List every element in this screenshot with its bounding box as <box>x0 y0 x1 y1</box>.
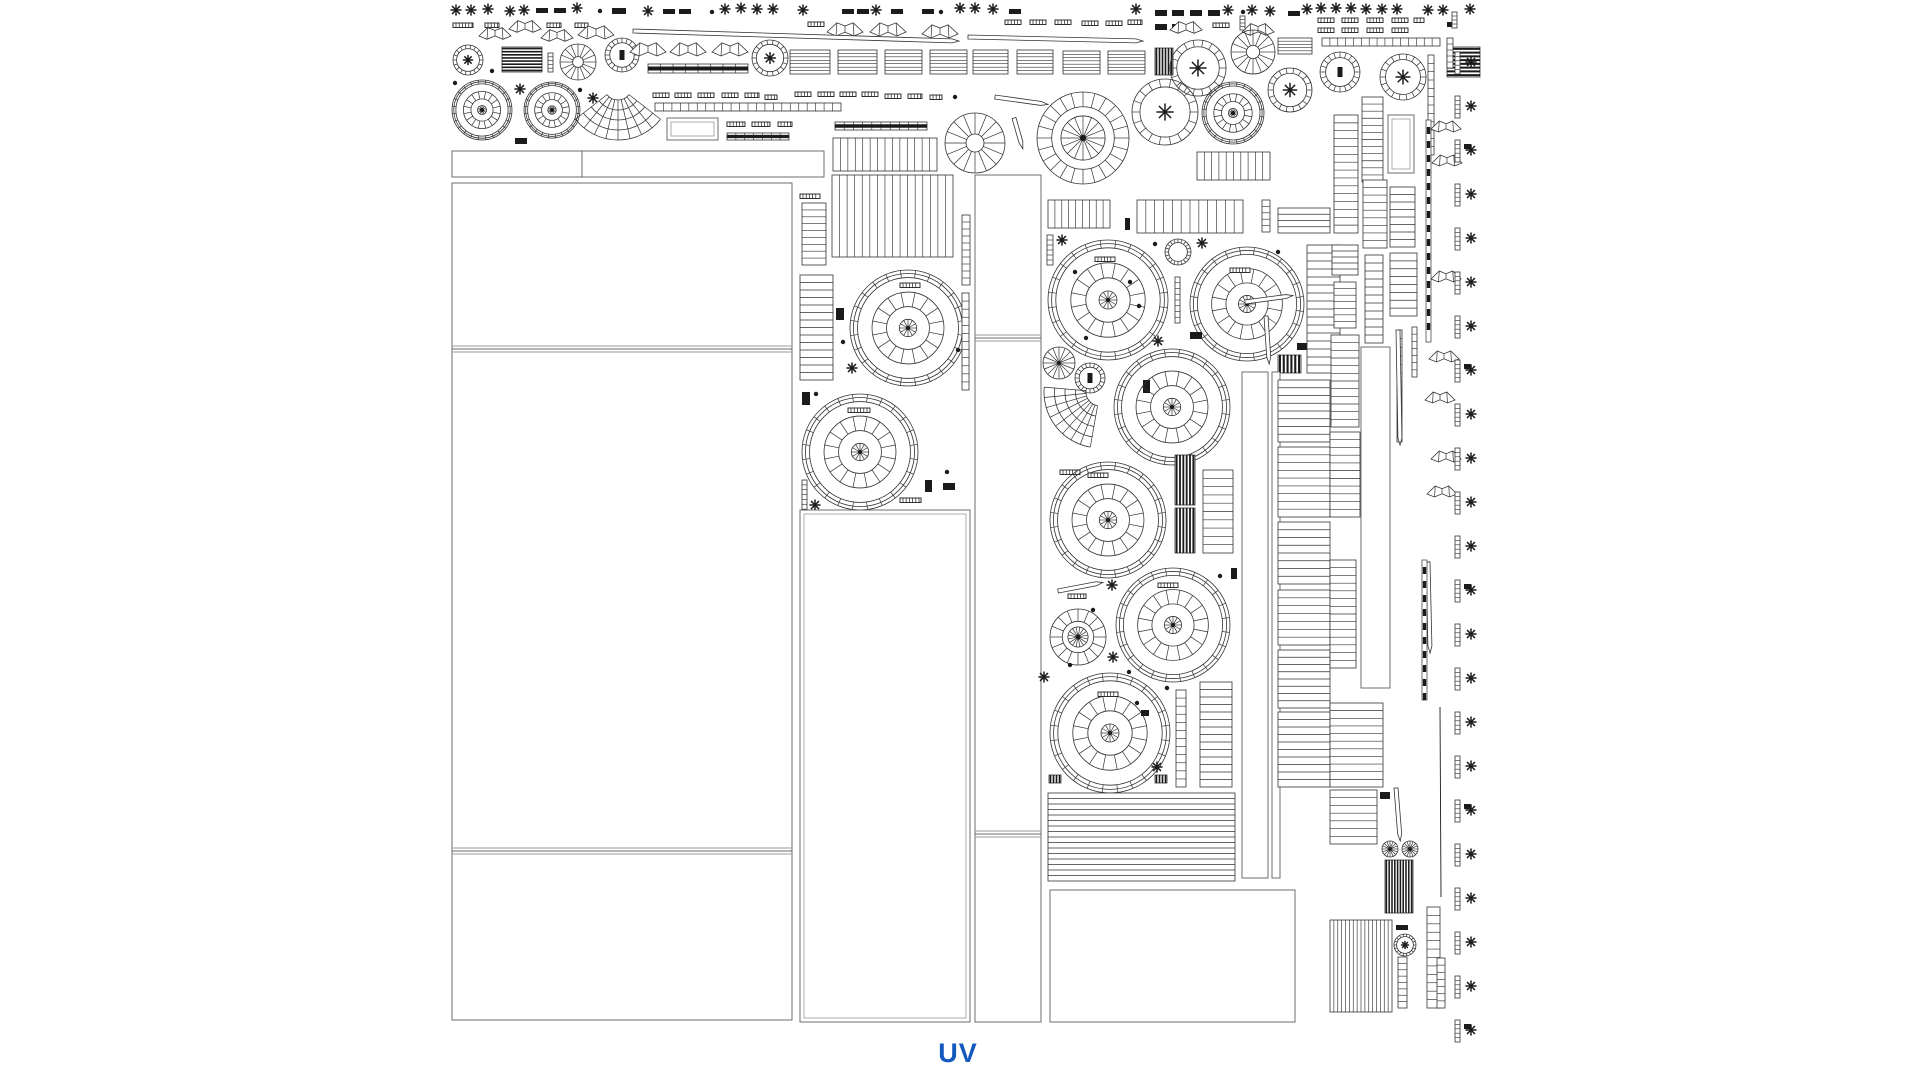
uv-island-br <box>800 510 970 1022</box>
uv-island-su <box>1037 92 1129 184</box>
uv-island-hd <box>502 47 542 72</box>
uv-island-sc <box>765 95 777 100</box>
uv-island-sc <box>1414 18 1424 23</box>
uv-island-hs <box>1108 51 1145 74</box>
uv-island-sc <box>1128 20 1142 25</box>
uv-island-hs <box>1332 245 1358 275</box>
uv-island-dt <box>490 69 494 73</box>
uv-island-sc <box>900 498 921 503</box>
uv-island-sg <box>752 40 788 76</box>
uv-island-sc <box>1213 23 1229 28</box>
uv-island-sc <box>930 95 942 100</box>
uv-island-dt <box>598 9 602 13</box>
uv-island-as <box>515 84 525 94</box>
uv-island-sc <box>1367 28 1383 33</box>
uv-island-hs <box>1330 703 1383 787</box>
uv-island-wg <box>509 21 541 33</box>
uv-island-ch <box>891 9 903 14</box>
uv-island-dt <box>953 95 957 99</box>
uv-island-sc <box>800 194 820 199</box>
uv-island-dt <box>1127 670 1131 674</box>
uv-island-hs <box>790 50 830 74</box>
uv-island-as <box>1465 4 1475 14</box>
uv-island-sc <box>840 92 856 97</box>
uv-island-hs <box>1278 208 1330 233</box>
uv-island-br <box>1388 115 1414 173</box>
uv-island-sc <box>1055 20 1071 25</box>
uv-island-vd <box>1278 355 1301 373</box>
uv-island-sc <box>1342 18 1358 23</box>
uv-island-vd <box>1175 455 1195 505</box>
uv-island-sc <box>485 23 499 28</box>
uv-island-sc <box>1098 692 1118 697</box>
uv-island-sc <box>862 92 878 97</box>
uv-island-fn <box>575 95 660 140</box>
uv-island-hs <box>1390 253 1417 316</box>
uv-island-dt <box>1165 686 1169 690</box>
uv-island-as <box>572 3 582 13</box>
uv-island-hs <box>885 50 922 74</box>
uv-island-dt <box>453 81 457 85</box>
uv-island-rc <box>452 151 582 177</box>
uv-island-hs <box>1362 97 1383 182</box>
uv-island-as <box>1361 4 1371 14</box>
uv-island-as <box>1039 672 1049 682</box>
uv-island-as <box>588 93 598 103</box>
uv-island-rd <box>1394 788 1402 841</box>
uv-island-hs <box>802 203 826 265</box>
uv-island-sg <box>1132 79 1198 145</box>
uv-island-sb <box>560 44 596 80</box>
uv-island-sc <box>1367 18 1383 23</box>
uv-island-ch <box>612 8 626 14</box>
uv-island-rg <box>1165 239 1191 265</box>
uv-island-as <box>1346 3 1356 13</box>
uv-island-hs <box>1331 335 1359 427</box>
uv-island-as <box>988 4 998 14</box>
uv-island-as <box>1438 5 1448 15</box>
uv-island-sc <box>575 23 588 28</box>
uv-island-hs <box>1330 560 1356 668</box>
uv-island-ch <box>1125 218 1130 230</box>
uv-island-dt <box>1153 242 1157 246</box>
uv-island-ch <box>1172 10 1184 16</box>
uv-island-rg <box>1320 52 1360 92</box>
uv-island-as <box>1197 238 1207 248</box>
uv-island-hs <box>1240 16 1245 30</box>
uv-island-rd <box>1012 117 1023 148</box>
uv-island-vd <box>1049 775 1061 783</box>
uv-island-as <box>1423 5 1433 15</box>
uv-island-sg <box>1170 40 1226 96</box>
uv-island-hs <box>1365 255 1383 343</box>
uv-island-sg <box>1394 934 1416 956</box>
uv-island-ch <box>515 138 527 144</box>
uv-island-wg <box>1429 351 1459 362</box>
uv-island-as <box>1057 235 1067 245</box>
uv-island-as <box>1392 4 1402 14</box>
uv-island-hs <box>1278 380 1330 442</box>
uv-island-ch <box>1155 10 1167 16</box>
uv-island-dt <box>1084 336 1088 340</box>
uv-island-hs <box>1452 12 1457 28</box>
uv-island-hs <box>1176 690 1186 787</box>
uv-island-dt <box>841 340 845 344</box>
uv-island-as <box>955 3 965 13</box>
uv-island-sc <box>1030 20 1046 25</box>
uv-island-bg <box>452 80 512 140</box>
uv-island-sc <box>1088 473 1108 478</box>
uv-island-ch <box>1380 792 1390 799</box>
uv-island-ch <box>1231 568 1237 579</box>
uv-island-wg <box>1425 392 1455 403</box>
uv-island-as <box>1107 580 1117 590</box>
uv-island-dt <box>939 10 943 14</box>
uv-island-hs <box>1175 277 1180 323</box>
uv-island-as <box>1265 6 1275 16</box>
uv-island-sb <box>1382 841 1398 857</box>
uv-island-ch <box>1155 24 1167 30</box>
uv-island-vs <box>1322 38 1440 46</box>
uv-island-vs <box>655 103 841 111</box>
uv-island-sc <box>885 94 901 99</box>
uv-island-wg <box>670 43 706 56</box>
uv-island-wg <box>1170 22 1202 34</box>
uv-island-vs <box>1048 200 1110 228</box>
uv-island-hs <box>802 480 807 514</box>
uv-island-fn <box>1044 387 1098 447</box>
uv-island-wg <box>479 28 511 40</box>
uv-island-sg <box>1268 68 1312 112</box>
uv-island-as <box>483 4 493 14</box>
uv-island-ch <box>554 8 566 13</box>
uv-island-hs <box>962 215 970 285</box>
uv-island-hs <box>1398 957 1407 1008</box>
uv-island-sg <box>453 45 483 75</box>
uv-island-ch <box>663 9 675 14</box>
uv-island-dt <box>1137 304 1141 308</box>
uv-island-hs <box>1437 958 1445 1008</box>
uv-island-cn <box>1422 560 1427 700</box>
uv-island-ch <box>679 9 691 14</box>
uv-island-as <box>1152 762 1162 772</box>
uv-island-wg <box>827 23 863 36</box>
uv-island-dr <box>452 183 792 1020</box>
uv-island-rg <box>1075 363 1105 393</box>
uv-island-as <box>519 5 529 15</box>
uv-island-ch <box>536 8 548 13</box>
uv-island-rc <box>582 151 824 177</box>
uv-island-db <box>648 64 748 73</box>
uv-island-vs <box>1330 920 1392 1012</box>
uv-island-dt <box>1135 701 1139 705</box>
uv-island-ch <box>925 480 932 492</box>
uv-island-as <box>1316 3 1326 13</box>
uv-label: UV <box>898 1038 1018 1069</box>
uv-island-hs <box>548 53 553 72</box>
uv-island-sb <box>1043 347 1075 379</box>
uv-island-dt <box>578 88 582 92</box>
uv-island-as <box>736 3 746 13</box>
uv-island-rd <box>633 29 959 43</box>
uv-island-ch <box>943 483 955 490</box>
uv-island-ch <box>1396 925 1408 930</box>
uv-preview-page: UV <box>0 0 1920 1080</box>
uv-island-as <box>505 6 515 16</box>
uv-island-as <box>1108 652 1118 662</box>
uv-island-sc <box>1318 28 1334 33</box>
uv-island-as <box>752 4 762 14</box>
uv-island-rc <box>1050 890 1295 1022</box>
uv-island-dt <box>1091 608 1095 612</box>
uv-island-sc <box>727 122 745 127</box>
uv-island-ch <box>1208 10 1220 16</box>
uv-island-as <box>643 6 653 16</box>
uv-island-as <box>1331 3 1341 13</box>
uv-island-sg <box>1380 54 1426 100</box>
uv-island-rc <box>1242 372 1268 878</box>
uv-island-sc <box>1158 583 1178 588</box>
uv-island-as <box>1302 4 1312 14</box>
uv-island-rg <box>605 38 639 72</box>
uv-island-cn <box>1426 120 1431 342</box>
uv-island-sc <box>848 408 870 413</box>
uv-island-hs <box>1334 115 1358 233</box>
uv-island-hs <box>1363 180 1387 248</box>
uv-island-wg <box>1431 121 1461 132</box>
uv-island-rd <box>1245 295 1293 304</box>
uv-island-wg <box>712 43 748 56</box>
uv-island-wg <box>870 23 906 36</box>
uv-island-rd <box>995 95 1048 105</box>
uv-island-ln <box>1440 707 1441 897</box>
uv-island-sb <box>1231 30 1275 74</box>
uv-island-as <box>720 4 730 14</box>
uv-island-wg <box>1242 24 1274 36</box>
uv-island-sc <box>1392 28 1408 33</box>
uv-island-dt <box>945 470 949 474</box>
uv-island-hs <box>1278 38 1312 54</box>
uv-layout-canvas <box>0 0 1920 1080</box>
uv-island-vs <box>1197 152 1270 180</box>
uv-island-hs <box>930 50 967 74</box>
uv-island-sc <box>698 93 714 98</box>
uv-island-ch <box>836 308 844 320</box>
uv-island-sc <box>722 93 738 98</box>
uv-island-dt <box>1241 10 1245 14</box>
uv-island-hs <box>1278 522 1330 584</box>
uv-island-rd <box>1058 582 1103 593</box>
uv-island-ch <box>1009 9 1021 14</box>
uv-island-as <box>768 4 778 14</box>
uv-island-wg <box>541 30 573 42</box>
uv-island-vs <box>833 138 937 171</box>
uv-island-bg <box>1202 82 1264 144</box>
uv-island-sc <box>653 93 669 98</box>
uv-island-sc <box>1005 20 1021 25</box>
uv-island-sc <box>778 122 792 127</box>
uv-island-ch <box>1288 11 1300 16</box>
uv-island-hs <box>962 293 969 390</box>
uv-island-hs <box>1017 50 1053 74</box>
uv-island-sc <box>675 93 691 98</box>
uv-island-as <box>451 5 461 15</box>
uv-island-hs <box>1334 282 1356 328</box>
uv-island-ch <box>1190 10 1202 16</box>
uv-island-as <box>970 3 980 13</box>
uv-island-hs <box>1203 470 1233 553</box>
uv-island-hs <box>1047 235 1053 265</box>
uv-island-sc <box>453 23 473 28</box>
uv-island-sc <box>1318 18 1334 23</box>
uv-island-hs <box>1200 682 1232 787</box>
uv-island-as <box>1377 4 1387 14</box>
uv-island-hs <box>1262 200 1270 232</box>
uv-island-vd <box>1385 860 1413 913</box>
uv-island-vd <box>1155 775 1167 783</box>
uv-island-as <box>810 500 820 510</box>
uv-island-rd <box>968 35 1143 43</box>
uv-island-sc <box>795 92 811 97</box>
uv-island-sb <box>945 113 1005 173</box>
uv-island-rc <box>1361 347 1390 688</box>
uv-island-sc <box>1392 18 1408 23</box>
uv-island-ch <box>802 392 810 405</box>
uv-island-ch <box>842 9 854 14</box>
uv-island-ch <box>1141 710 1149 716</box>
uv-island-hs <box>1330 790 1377 844</box>
uv-island-hs <box>1278 590 1330 645</box>
uv-edge-column <box>1455 52 1476 1042</box>
uv-island-db <box>835 122 927 130</box>
uv-island-bg <box>1114 349 1230 465</box>
uv-island-bg <box>524 82 580 138</box>
uv-island-dt <box>1128 280 1132 284</box>
uv-island-as <box>1131 4 1141 14</box>
uv-island-sc <box>1082 21 1098 26</box>
uv-island-hs <box>1048 793 1235 881</box>
uv-island-sc <box>752 122 770 127</box>
uv-island-vd <box>1175 508 1195 553</box>
uv-island-as <box>847 363 857 373</box>
uv-island-wg <box>922 25 958 38</box>
uv-island-sc <box>818 92 834 97</box>
uv-island-wr <box>1050 609 1106 665</box>
uv-island-sc <box>1230 268 1250 273</box>
uv-island-hs <box>1412 327 1417 377</box>
uv-island-sc <box>808 22 824 27</box>
uv-island-as <box>1247 5 1257 15</box>
uv-island-as <box>1153 336 1163 346</box>
uv-island-bg <box>1050 673 1170 793</box>
uv-island-dt <box>710 10 714 14</box>
uv-island-hs <box>1447 38 1453 68</box>
uv-island-as <box>798 5 808 15</box>
uv-island-dt <box>956 348 960 352</box>
uv-island-rd <box>1264 316 1271 364</box>
uv-island-sc <box>1095 257 1115 262</box>
uv-island-db <box>727 133 789 140</box>
uv-island-vs <box>1137 200 1243 233</box>
uv-island-sb <box>1402 841 1418 857</box>
uv-island-hs <box>1278 447 1330 517</box>
uv-island-ch <box>857 9 869 14</box>
uv-island-sc <box>745 93 759 98</box>
uv-island-sc <box>908 94 922 99</box>
uv-island-hs <box>1278 650 1330 708</box>
uv-island-dt <box>1218 574 1222 578</box>
uv-island-dt <box>1068 663 1072 667</box>
uv-island-vs <box>832 175 953 257</box>
uv-island-dr <box>975 175 1041 1022</box>
uv-island-sc <box>1342 28 1358 33</box>
uv-island-sc <box>1068 594 1086 599</box>
uv-island-hs <box>973 50 1008 74</box>
uv-island-br <box>667 118 718 140</box>
uv-island-dt <box>1073 270 1077 274</box>
uv-island-hs <box>1278 712 1330 787</box>
uv-island-dt <box>814 392 818 396</box>
uv-island-as <box>466 5 476 15</box>
uv-island-hs <box>800 275 833 380</box>
uv-island-dt <box>1276 250 1280 254</box>
uv-island-hs <box>1330 432 1360 517</box>
uv-island-bg <box>1050 462 1166 578</box>
uv-island-hs <box>1063 51 1100 74</box>
uv-island-as <box>1223 5 1233 15</box>
uv-island-sc <box>547 23 561 28</box>
uv-island-ch <box>922 9 934 14</box>
uv-island-ch <box>1190 332 1202 339</box>
uv-island-hs <box>838 50 877 74</box>
uv-island-sc <box>900 283 920 288</box>
uv-island-wg <box>1427 486 1457 497</box>
uv-island-as <box>871 5 881 15</box>
uv-island-hs <box>1390 187 1415 247</box>
uv-island-sc <box>1106 21 1122 26</box>
